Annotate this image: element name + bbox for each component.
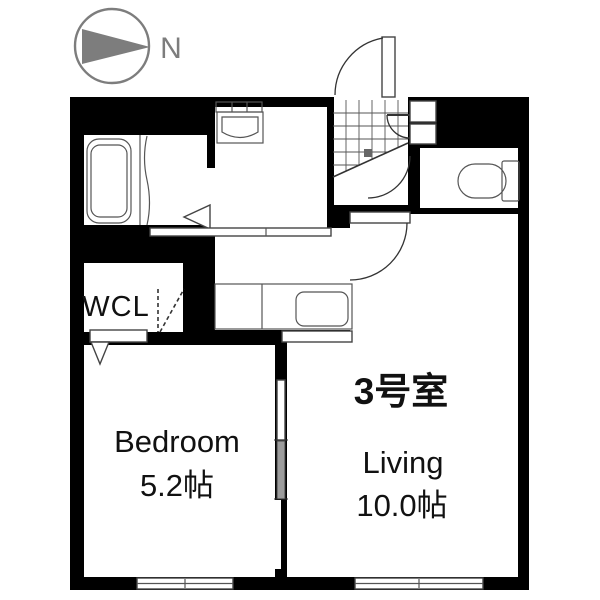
bedroom-label: Bedroom bbox=[114, 424, 240, 459]
counter-front-lip bbox=[282, 331, 352, 342]
partition-pocket bbox=[274, 500, 281, 569]
front-door-swing-arc bbox=[335, 38, 383, 95]
wcl-label: WCL bbox=[82, 291, 149, 323]
bedroom-size-label: 5.2帖 bbox=[140, 468, 214, 503]
living-window bbox=[355, 578, 483, 589]
living-label: Living bbox=[363, 445, 444, 480]
living-upper-strip bbox=[408, 214, 518, 223]
front-door-leaf bbox=[382, 37, 395, 97]
north-compass: N bbox=[75, 9, 182, 83]
floor-plan: N bbox=[0, 0, 600, 600]
bedroom-window bbox=[137, 578, 233, 589]
hall-door-hinge bbox=[364, 149, 372, 157]
washroom-sliding-door bbox=[150, 228, 331, 236]
bedroom-door-leaf bbox=[90, 330, 147, 342]
partition-track bbox=[277, 380, 285, 440]
kitchen-corridor-floor bbox=[215, 228, 353, 330]
unit-number-label: 3号室 bbox=[354, 370, 449, 412]
living-size-label: 10.0帖 bbox=[356, 488, 447, 523]
north-arrow-icon bbox=[82, 29, 150, 64]
washroom-floor bbox=[215, 107, 327, 228]
living-door-leaf bbox=[350, 212, 410, 223]
north-label: N bbox=[160, 32, 182, 65]
toilet-floor bbox=[420, 148, 518, 208]
bedroom-floor bbox=[84, 345, 275, 577]
floor-plan-svg: N bbox=[0, 0, 600, 600]
shoe-cabinet-upper bbox=[410, 101, 436, 122]
living-upper-floor bbox=[350, 223, 518, 332]
shoe-cabinet-lower bbox=[410, 124, 436, 144]
sliding-door-panel bbox=[277, 441, 285, 499]
